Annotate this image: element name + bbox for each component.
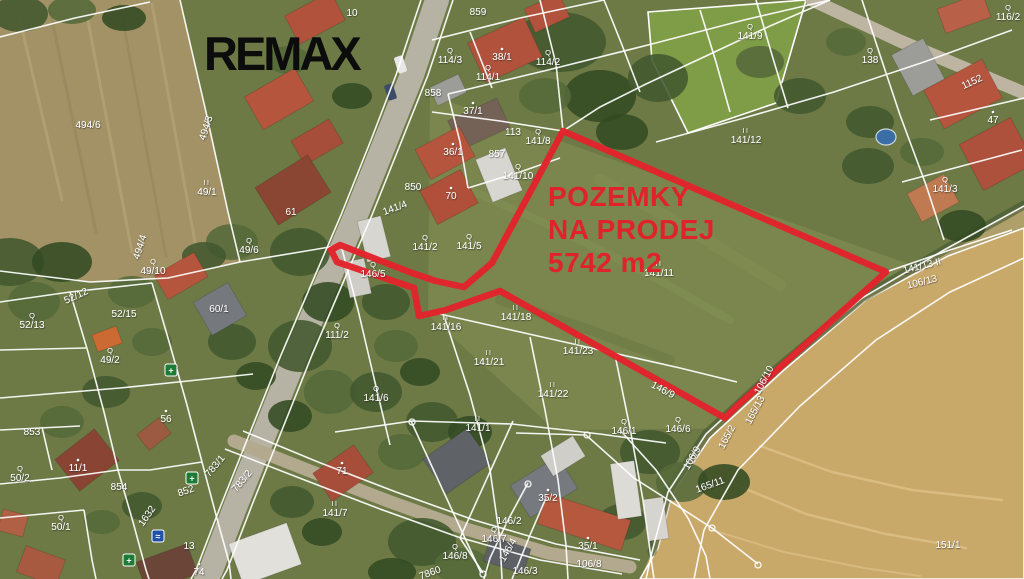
landuse-symbol: Q (29, 311, 35, 320)
marker-glyph: + (189, 474, 194, 484)
parcel-number: 141/23 (563, 346, 594, 357)
building-dot (450, 187, 453, 190)
landuse-symbol: II (475, 416, 482, 423)
parcel-number: 141/1 (465, 423, 490, 434)
parcel-number: 38/1 (492, 52, 512, 63)
parcel-number: 70 (445, 191, 457, 202)
parcel-number: 111/2 (325, 330, 349, 341)
sale-caption: POZEMKY NA PRODEJ 5742 m2 (548, 180, 715, 279)
parcel-number: 56 (160, 414, 172, 425)
landuse-symbol: Q (246, 236, 252, 245)
parcel-number: 146/6 (665, 424, 690, 435)
parcel-number: 141/16 (431, 322, 462, 333)
tree (236, 362, 276, 390)
parcel-number: 13 (183, 541, 195, 552)
parcel-number: 141/22 (538, 389, 569, 400)
parcel-number: 141/18 (501, 312, 532, 323)
parcel-number: 141/12 (731, 135, 762, 146)
parcel-number: 141/8 (525, 136, 550, 147)
tree (40, 406, 84, 438)
landuse-symbol: Q (447, 46, 453, 55)
parcel-number: 857 (489, 149, 506, 160)
landuse-symbol: II (443, 315, 450, 322)
parcel-number: 146/1 (611, 426, 636, 437)
landuse-symbol: II (550, 382, 557, 389)
building-dot (547, 489, 550, 492)
parcel-number: 37/1 (463, 106, 483, 117)
parcel-number: 853 (24, 427, 41, 438)
landuse-symbol: II (486, 350, 493, 357)
parcel-number: 114/3 (438, 55, 463, 66)
parcel-number: 114/1 (476, 72, 501, 83)
parcel-label: 850 (405, 182, 422, 193)
sale-caption-line3: 5742 m2 (548, 246, 715, 279)
parcel-number: 141/3 (932, 184, 957, 195)
landuse-symbol: Q (373, 384, 379, 393)
parcel-number: 116/2 (996, 12, 1021, 23)
landuse-symbol: Q (747, 22, 753, 31)
sale-caption-line2: NA PRODEJ (548, 213, 715, 246)
building-dot (198, 563, 201, 566)
parcel-number: 50/2 (10, 473, 30, 484)
remax-logo: REMAX (204, 30, 359, 77)
parcel-label: 857 (489, 149, 506, 160)
parcel-number: 141/21 (474, 357, 505, 368)
marker-glyph: ≈ (156, 532, 161, 542)
map-marker-icon-blue: ≈ (152, 530, 164, 542)
landuse-symbol: Q (452, 542, 458, 551)
parcel-number: 10 (346, 8, 358, 19)
parcel-number: 49/10 (140, 266, 165, 277)
building-dot (341, 462, 344, 465)
tree (82, 376, 130, 408)
building-dot (992, 111, 995, 114)
parcel-number: 146/2 (496, 516, 521, 527)
parcel-number: 859 (470, 7, 487, 18)
parcel-number: 47 (987, 115, 999, 126)
parcel-label: 10 (346, 8, 358, 19)
landuse-symbol: Q (942, 175, 948, 184)
parcel-number: 35/1 (578, 541, 598, 552)
building-dot (452, 143, 455, 146)
landuse-symbol: Q (17, 464, 23, 473)
parcel-number: 146/8 (442, 551, 467, 562)
parcel-number: 49/6 (239, 245, 259, 256)
parcel-number: 71 (336, 466, 348, 477)
landuse-symbol: Q (867, 46, 873, 55)
parcel-number: 52/15 (111, 309, 136, 320)
parcel-number: 106/8 (576, 559, 601, 570)
parcel-label: 113 (505, 127, 521, 138)
parcel-label: 52/15 (111, 309, 136, 320)
tree (84, 510, 120, 534)
landuse-symbol: II (332, 501, 339, 508)
parcel-label: 151/1 (935, 540, 960, 551)
parcel-number: 146/7 (481, 534, 506, 545)
parcel-label: 146/2 (496, 516, 521, 527)
parcel-number: 141/2 (412, 242, 437, 253)
parcel-label: 106/8 (576, 559, 601, 570)
parcel-label: 146/3 (512, 566, 537, 577)
building-dot (501, 48, 504, 51)
parcel-number: 141/9 (737, 31, 762, 42)
parcel-number: 494/6 (75, 120, 100, 131)
marker-glyph: + (168, 366, 173, 376)
tree (268, 400, 312, 432)
landuse-symbol: Q (58, 513, 64, 522)
parcel-label: 858 (425, 88, 442, 99)
parcel-number: 50/1 (51, 522, 71, 533)
parcel-label: 13 (183, 541, 195, 552)
landuse-symbol: Q (107, 346, 113, 355)
listing-image: 494/6494/349/1II6149/6Q494/449/10Q52/125… (0, 0, 1024, 579)
building-dot (472, 102, 475, 105)
parcel-number: 146/5 (360, 269, 385, 280)
parcel-number: 141/6 (363, 393, 388, 404)
landuse-symbol: II (204, 180, 211, 187)
parcel-number: 141/7 (322, 508, 347, 519)
parcel-label: 853 (24, 427, 41, 438)
tree (826, 28, 866, 56)
parcel-number: 850 (405, 182, 422, 193)
tree (842, 148, 894, 184)
parcel-number: 858 (425, 88, 442, 99)
parcel-number: 49/2 (100, 355, 120, 366)
parcel-number: 113 (505, 127, 521, 138)
parcel-number: 61 (285, 207, 297, 218)
landuse-symbol: Q (334, 321, 340, 330)
tree (596, 114, 648, 150)
landuse-symbol: Q (370, 260, 376, 269)
tree (304, 370, 356, 414)
map-marker-icon-green: + (186, 472, 198, 484)
landuse-symbol: Q (535, 127, 541, 136)
tree (374, 330, 418, 362)
marker-glyph: + (126, 556, 131, 566)
parcel-number: 11/1 (69, 463, 88, 474)
tree (519, 78, 571, 114)
parcel-number: 854 (111, 482, 128, 493)
sale-caption-line1: POZEMKY (548, 180, 715, 213)
parcel-number: 138 (862, 55, 879, 66)
landuse-symbol: II (575, 339, 582, 346)
parcel-number: 146/3 (512, 566, 537, 577)
landuse-symbol: Q (515, 162, 521, 171)
parcel-label: 859 (470, 7, 487, 18)
pool (876, 129, 896, 145)
parcel-number: 60/1 (209, 304, 229, 315)
parcel-number: 36/1 (443, 147, 463, 158)
parcel-label: 494/6 (75, 120, 100, 131)
parcel-label: 61 (285, 207, 297, 218)
tree (302, 518, 342, 546)
landuse-symbol: Q (675, 415, 681, 424)
parcel-label: 854 (111, 482, 128, 493)
aerial-map: 494/6494/349/1II6149/6Q494/449/10Q52/125… (0, 0, 1024, 579)
tree (400, 358, 440, 386)
parcel-number: 114/2 (536, 57, 561, 68)
parcel-number: 151/1 (935, 540, 960, 551)
map-marker-icon-green: + (123, 554, 135, 566)
landuse-symbol: Q (466, 232, 472, 241)
landuse-symbol: Q (621, 417, 627, 426)
landuse-symbol: Q (491, 525, 497, 534)
landuse-symbol: Q (1005, 3, 1011, 12)
tree (938, 210, 986, 242)
landuse-symbol: II (743, 128, 750, 135)
landuse-symbol: Q (545, 48, 551, 57)
parcel-number: 141/10 (503, 171, 534, 182)
parcel-label: 60/1 (209, 304, 229, 315)
map-marker-icon-green: + (165, 364, 177, 376)
parcel-number: 74 (193, 567, 205, 578)
landuse-symbol: Q (150, 257, 156, 266)
tree (102, 5, 146, 31)
tree (332, 83, 372, 109)
parcel-number: 141/5 (456, 241, 481, 252)
landuse-symbol: Q (485, 63, 491, 72)
building-dot (165, 410, 168, 413)
landuse-symbol: II (513, 305, 520, 312)
tree (270, 486, 314, 518)
parcel-number: 35/2 (538, 493, 558, 504)
landuse-symbol: Q (422, 233, 428, 242)
parcel-number: 49/1 (197, 187, 217, 198)
building-dot (77, 459, 80, 462)
tree (900, 138, 944, 166)
building-dot (587, 537, 590, 540)
parcel-number: 52/13 (19, 320, 44, 331)
